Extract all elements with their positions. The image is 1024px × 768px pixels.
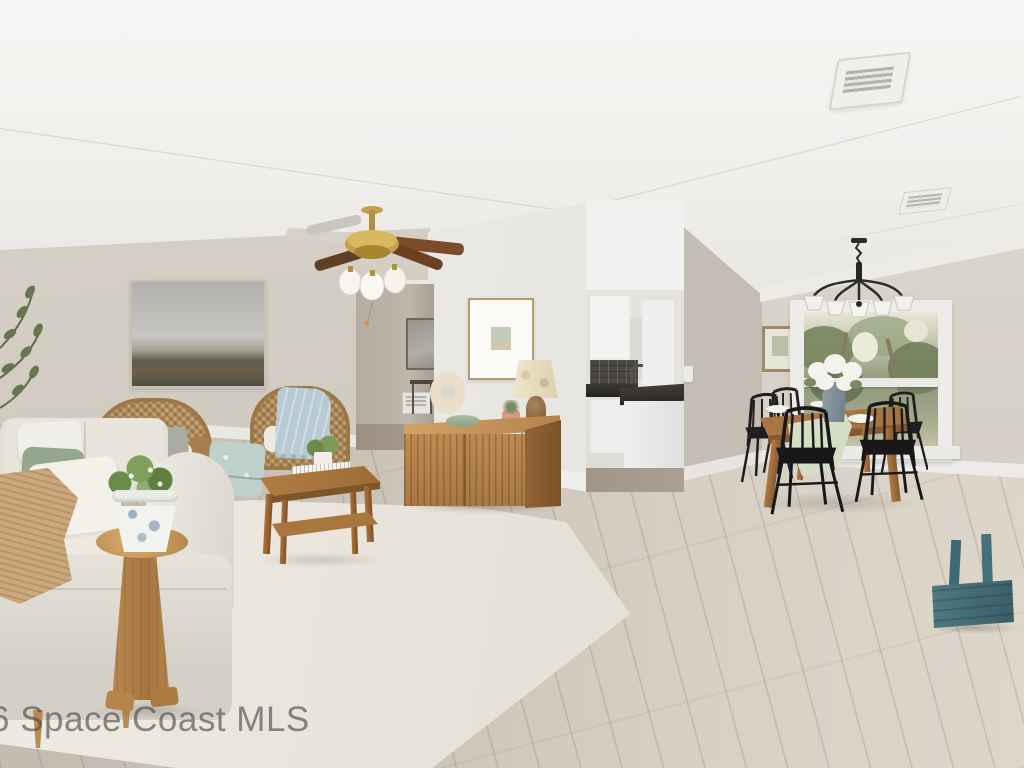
chinoiserie-planter (104, 452, 188, 556)
light-switch (684, 366, 693, 382)
black-spindle-chair (856, 403, 922, 502)
chandelier-shade (826, 301, 845, 315)
donut-vase (430, 372, 466, 414)
ceiling-fan (278, 200, 468, 335)
listing-photo: 6 Space Coast MLS (0, 0, 1024, 768)
coffee-table-shadow (256, 552, 386, 568)
fan-light (360, 272, 384, 300)
fan-light (339, 269, 361, 295)
vent-louvers (842, 66, 894, 94)
fan-light (384, 267, 406, 293)
kitchen (586, 200, 684, 492)
chandelier-shade (873, 301, 892, 315)
caddy-handle (981, 534, 993, 584)
coffee-table-leg (263, 494, 273, 554)
black-spindle-chair (772, 408, 843, 514)
kitchen-peninsula (624, 401, 684, 477)
vent-louvers (906, 193, 943, 209)
chandelier (802, 238, 917, 333)
coffee-table (246, 428, 396, 573)
mls-watermark: 6 Space Coast MLS (0, 700, 310, 740)
kitchen-upper-cabinet (590, 296, 632, 362)
credenza (402, 358, 566, 518)
left-plant (0, 268, 60, 438)
planter-rim (112, 490, 178, 502)
landscape-art (130, 280, 266, 388)
credenza-side (525, 420, 561, 510)
table-lamp-shade (512, 360, 558, 398)
green-bowl (446, 415, 480, 427)
teal-caddy (930, 534, 1016, 630)
ceiling-vent (829, 52, 912, 111)
kitchen-floor (586, 468, 684, 492)
fan-pull-chain (368, 300, 373, 320)
chandelier-shade (804, 296, 824, 310)
chandelier-shade (894, 296, 914, 310)
ceiling-seam (585, 96, 1022, 209)
dining-chairs-near (738, 350, 928, 520)
credenza-door-seam (464, 434, 466, 506)
caddy-body (932, 580, 1014, 628)
chandelier-chain (856, 243, 861, 263)
kitchen-tall-cabinet (640, 300, 674, 392)
caddy-handle (949, 540, 961, 588)
ceiling-vent-small (898, 187, 951, 215)
